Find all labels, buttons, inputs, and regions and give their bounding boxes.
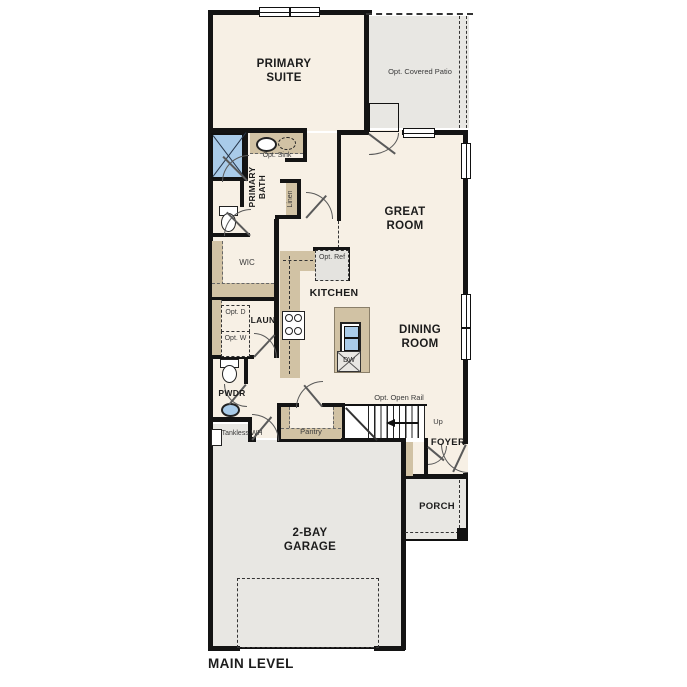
- up-arrow-head: [386, 419, 395, 427]
- kitchen-opening-dashed: [338, 221, 339, 248]
- plan-title: MAIN LEVEL: [208, 656, 338, 672]
- optional-refrigerator-label: Opt. Ref: [316, 254, 348, 262]
- optional-dryer-label: Opt. D: [222, 309, 249, 317]
- room-label-garage: 2-BAY GARAGE: [270, 527, 350, 555]
- powder-toilet-bowl: [222, 365, 237, 383]
- wall-segment: [274, 219, 279, 302]
- optional-sink-label: Opt. Sink: [262, 152, 292, 160]
- sink-basin: [344, 326, 359, 339]
- optional-washer-label: Opt. W: [222, 335, 249, 343]
- room-label-kitchen: KITCHEN: [305, 287, 363, 300]
- window: [461, 328, 471, 360]
- room-label-powder: PWDR: [213, 388, 251, 398]
- room-label-porch: PORCH: [414, 501, 460, 512]
- open-rail-label: Opt. Open Rail: [363, 394, 435, 403]
- porch-dashed-edge: [405, 532, 459, 533]
- porch-column: [457, 528, 468, 539]
- garage-bay-dashed: [237, 578, 379, 648]
- stove-burner: [294, 327, 302, 335]
- patio-step: [369, 103, 399, 132]
- room-label-great-room: GREAT ROOM: [374, 206, 436, 234]
- counter-dashed-line: [283, 260, 313, 261]
- wall-segment: [208, 417, 248, 422]
- floor-plan: Opt. D Opt. W Opt. Ref DW: [0, 0, 687, 687]
- wall-segment: [208, 646, 240, 651]
- wall-segment: [275, 215, 301, 219]
- vanity-sink: [256, 137, 277, 152]
- island-sink: [340, 322, 361, 354]
- wall-segment: [337, 131, 341, 221]
- window: [290, 7, 320, 17]
- stove-burner: [285, 314, 293, 322]
- room-label-dining-room: DINING ROOM: [385, 324, 455, 352]
- room-label-wic: WIC: [232, 258, 262, 267]
- room-label-primary-bath: PRIMARY BATH: [247, 157, 269, 217]
- window: [403, 128, 435, 138]
- window: [461, 294, 471, 328]
- window: [461, 143, 471, 179]
- patio-dashed-edge: [466, 16, 467, 128]
- optional-dryer: Opt. D: [221, 305, 250, 332]
- optional-sink: [278, 137, 296, 150]
- wall-segment: [303, 128, 307, 162]
- wall-segment: [240, 181, 244, 207]
- optional-washer: Opt. W: [221, 331, 250, 357]
- porch-edge: [405, 539, 468, 541]
- patio-dashed-edge: [366, 13, 473, 15]
- room-label-primary-suite: PRIMARY SUITE: [238, 58, 330, 86]
- linen-label: Linen: [287, 184, 297, 214]
- stove-burner: [294, 314, 302, 322]
- understair-wall: [406, 442, 413, 476]
- room-label-patio: Opt. Covered Patio: [378, 68, 462, 77]
- up-arrow-line: [394, 422, 418, 424]
- optional-refrigerator: Opt. Ref: [315, 250, 349, 281]
- dishwasher-label: DW: [338, 357, 360, 365]
- dishwasher: DW: [337, 351, 361, 372]
- sink-basin: [344, 338, 359, 351]
- tankless-wh-label: Tankless WH: [221, 430, 263, 438]
- wic-shelf: [212, 283, 274, 297]
- room-label-pantry: Pantry: [294, 428, 328, 437]
- wall-segment: [244, 358, 248, 384]
- stove-burner: [285, 327, 293, 335]
- room-label-laundry: LAUN: [247, 315, 279, 325]
- wall-segment: [297, 179, 301, 219]
- up-label: Up: [427, 418, 449, 427]
- room-label-foyer: FOYER: [429, 437, 467, 448]
- window: [259, 7, 290, 17]
